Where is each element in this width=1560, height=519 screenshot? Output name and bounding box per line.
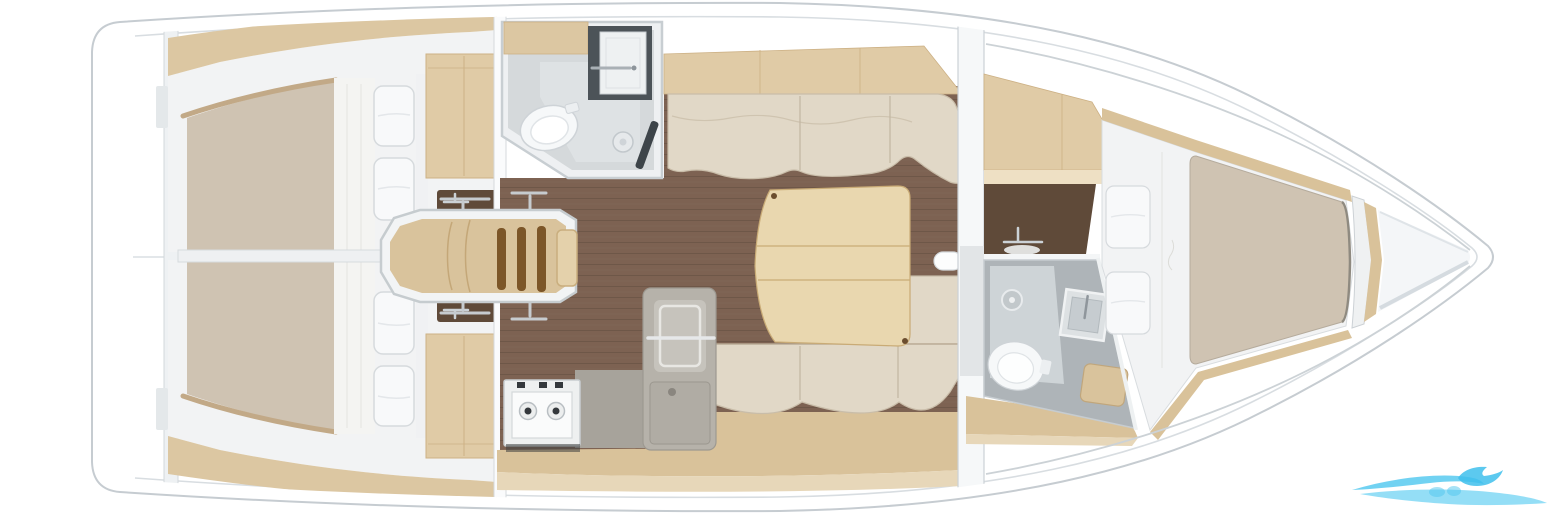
burner-icon <box>548 403 565 420</box>
bed-sheet <box>334 78 375 252</box>
burner-icon <box>520 403 537 420</box>
step-slot <box>517 227 526 291</box>
shower-drain-icon <box>1002 290 1022 310</box>
stove-shadow <box>506 444 580 452</box>
berth-pillow <box>1106 186 1150 248</box>
wave-text-blur <box>1447 486 1461 496</box>
galley-counter <box>575 370 650 448</box>
forward-vanity <box>984 184 1096 255</box>
table-peg <box>771 193 777 199</box>
step-slot <box>497 228 506 290</box>
stove <box>504 380 580 452</box>
wardrobe <box>426 54 497 178</box>
door-latch <box>668 388 676 396</box>
bed-pillow <box>374 158 414 220</box>
stern-step-bottom <box>156 388 168 430</box>
stove-knob <box>517 382 525 388</box>
sink-basin <box>654 300 706 372</box>
stove-knob <box>555 382 563 388</box>
bed-pillow <box>374 86 414 146</box>
step-slot <box>537 226 546 292</box>
berth-pillow <box>1106 272 1150 334</box>
aft-head-sink <box>588 26 652 100</box>
wave-text-blur <box>1429 487 1445 497</box>
sink-basin <box>600 32 646 94</box>
galley-sink-unit <box>643 288 716 450</box>
companionway <box>381 193 577 319</box>
settee-plinth <box>704 412 960 454</box>
head-wall-gap <box>984 254 1100 260</box>
yacht-floorplan <box>0 0 1560 519</box>
saloon-table <box>755 186 910 346</box>
stove-knob <box>539 382 547 388</box>
fridge-door <box>650 382 710 444</box>
table-peg <box>902 338 908 344</box>
saloon-cabinet-band <box>664 46 962 94</box>
bottom-step <box>557 230 577 286</box>
bulkhead-doorway <box>960 246 984 376</box>
shower-drain-icon <box>613 132 633 152</box>
aft-head-shelf <box>504 22 588 54</box>
head-sink <box>1060 289 1110 341</box>
stern-step-top <box>156 86 168 128</box>
vanity-basin <box>1004 245 1040 255</box>
